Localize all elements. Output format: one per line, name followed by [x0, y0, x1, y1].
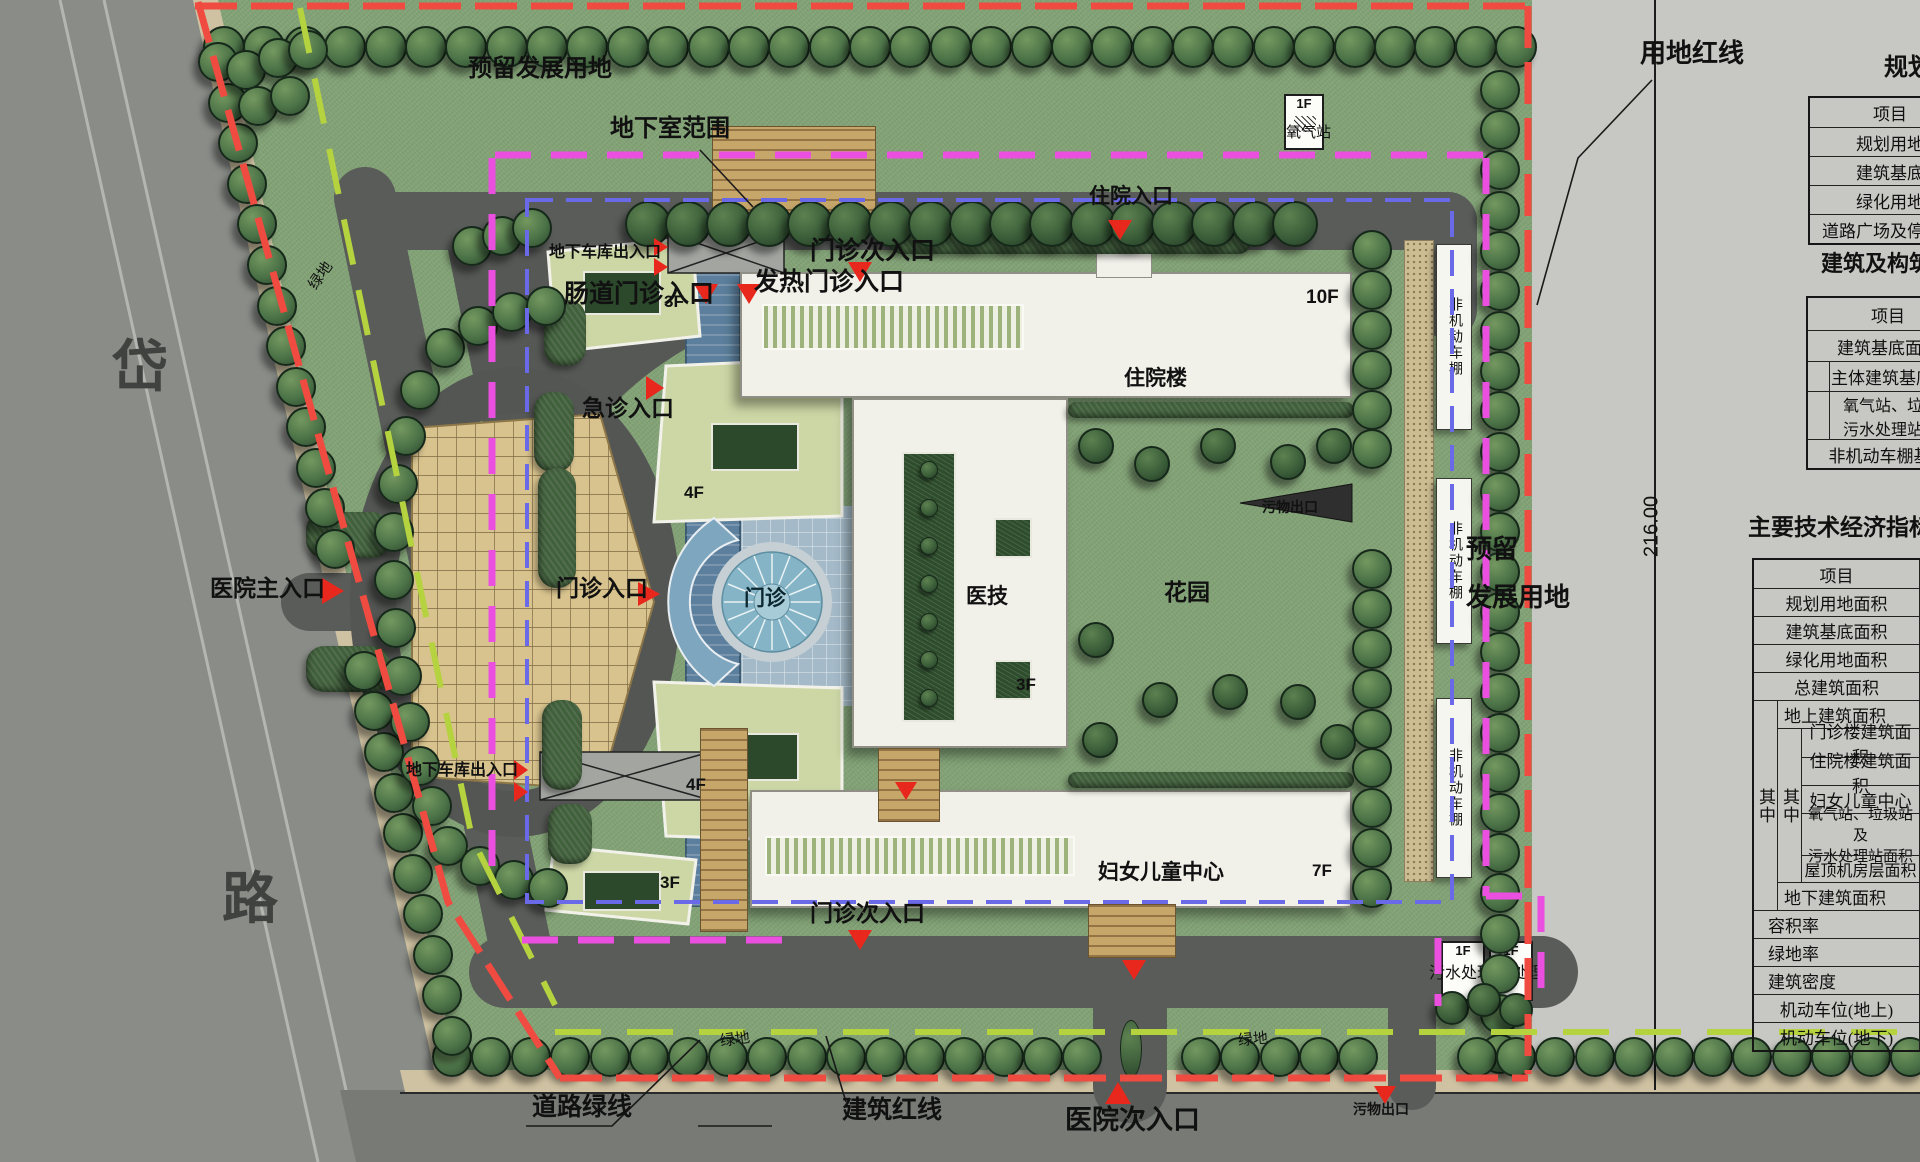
table-header: 项目: [1808, 298, 1920, 330]
qizhong-inner: 其中: [1778, 729, 1802, 882]
intestinal-entrance-label: 肠道门诊入口: [564, 281, 714, 307]
table-header: 项目: [1810, 98, 1920, 127]
table-row-label: 建筑基底面积: [1808, 331, 1920, 361]
outpatient-side-entrance-label: 门诊次入口: [810, 238, 935, 264]
reserved-right-label: 发展用地: [1466, 584, 1570, 611]
block-floors: 4F: [684, 484, 704, 502]
qizhong-group: 其中 地上建筑面积 其中 门诊楼建筑面积 住院楼建筑面积 妇女儿童中心 氧气站、…: [1754, 700, 1920, 910]
waste-exit-label: 污物出口: [1353, 1102, 1409, 1117]
indent-cell: [1808, 392, 1830, 439]
waste-exit-label: 污物出口: [1262, 500, 1318, 515]
table-row-line: 氧气站、垃圾站: [1843, 392, 1920, 416]
indicators-table: 项目 规划用地面积 建筑基底面积 绿化用地面积 总建筑面积 其中 地上建筑面积 …: [1752, 558, 1920, 1052]
table-row-line: 氧气站、垃圾站及: [1802, 803, 1919, 845]
block-floors: 4F: [686, 776, 706, 794]
table-row-label: 规划用地: [1810, 128, 1920, 156]
fever-entrance-label: 发热门诊入口: [754, 269, 904, 295]
inpatient-floors: 10F: [1306, 288, 1339, 308]
qizhong-inner-body: 门诊楼建筑面积 住院楼建筑面积 妇女儿童中心 氧气站、垃圾站及 污水处理站面积 …: [1802, 729, 1920, 882]
table-row-label: 机动车位(地下): [1754, 1023, 1919, 1050]
road-green-line-label: 道路绿线: [532, 1094, 632, 1120]
emergency-entrance-label: 急诊入口: [582, 396, 674, 420]
planning-table-title: 规划: [1884, 56, 1920, 81]
basement-extent-label: 地下室范围: [610, 116, 730, 141]
table-row-label: 总建筑面积: [1754, 673, 1919, 700]
table-row-label: 地下建筑面积: [1778, 883, 1919, 910]
medtech-floors: 3F: [1016, 676, 1036, 694]
dimension-label: 216.00: [1642, 487, 1663, 567]
table-row-label: 屋顶机房层面积: [1802, 856, 1919, 883]
table-row-label: 道路广场及停车场: [1810, 215, 1920, 243]
qizhong-outer: 其中: [1754, 701, 1778, 910]
table-row-label: 规划用地面积: [1754, 589, 1919, 616]
indent-cell: [1808, 362, 1830, 391]
structures-table-title: 建筑及构筑物: [1821, 252, 1920, 275]
inpatient-entrance-label: 住院入口: [1089, 186, 1173, 208]
outpatient-side-entrance-label: 门诊次入口: [810, 901, 925, 925]
block-floors: 3F: [664, 293, 684, 311]
garage-entrance-label: 地下车库出入口: [549, 245, 661, 262]
table-row-label: 建筑密度: [1754, 967, 1919, 994]
entrance-markers: [322, 220, 1396, 1104]
table-row-label: 绿化用地: [1810, 186, 1920, 214]
table-row-label: 住院楼建筑面积: [1802, 758, 1919, 785]
outpatient-hall-label: 门诊: [744, 588, 786, 610]
planning-table: 项目 规划用地 建筑基底 绿化用地 道路广场及停车场: [1808, 96, 1920, 245]
garden-label: 花园: [1164, 580, 1210, 604]
table-row-label: 建筑基底面积: [1754, 617, 1919, 644]
secondary-entrance-label: 医院次入口: [1065, 1106, 1200, 1134]
road-name-char: 岱: [112, 322, 168, 403]
table-row-label: 非机动车棚基底: [1808, 440, 1920, 468]
table-row-label: 建筑基底: [1810, 157, 1920, 185]
women-children-floors: 7F: [1312, 862, 1332, 880]
garage-entrance-label: 地下车库出入口: [406, 763, 518, 780]
outpatient-entrance-label: 门诊入口: [556, 576, 648, 600]
table-row-label: 主体建筑基底面积: [1830, 362, 1920, 391]
building-red-line-label: 建筑红线: [842, 1097, 942, 1123]
medtech-label: 医技: [966, 586, 1008, 608]
green-strip-label: 绿地: [1237, 1031, 1268, 1049]
table-row-label: 氧气站、垃圾站及 污水处理站面积: [1802, 814, 1919, 855]
land-red-line-label: 用地红线: [1640, 40, 1744, 67]
table-row-label: 绿化用地面积: [1754, 645, 1919, 672]
women-children-label: 妇女儿童中心: [1098, 862, 1224, 884]
structures-table: 项目 建筑基底面积 主体建筑基底面积 氧气站、垃圾站 污水处理站基底 非机动车棚…: [1806, 296, 1920, 470]
road-name-char: 路: [222, 854, 278, 935]
site-plan: 非机动车棚 非机动车棚 非机动车棚 1F 氧气站 1F 污水处理 1F 污物处理: [0, 0, 1920, 1162]
table-row-label: 绿地率: [1754, 939, 1919, 966]
reserved-right-label: 预留: [1466, 536, 1518, 563]
inpatient-building-label: 住院楼: [1124, 368, 1187, 390]
table-row-label: 容积率: [1754, 911, 1919, 938]
table-row-label: 氧气站、垃圾站 污水处理站基底: [1830, 392, 1920, 439]
indicators-table-title: 主要技术经济指标: [1748, 516, 1920, 540]
qizhong-body: 地上建筑面积 其中 门诊楼建筑面积 住院楼建筑面积 妇女儿童中心 氧气站、垃圾站…: [1778, 701, 1920, 910]
table-row-label: 机动车位(地上): [1754, 995, 1919, 1022]
table-row-line: 污水处理站基底: [1843, 416, 1920, 440]
main-entrance-label: 医院主入口: [210, 576, 325, 600]
table-header: 项目: [1754, 560, 1919, 588]
block-floors: 3F: [660, 874, 680, 892]
reserved-land-label: 预留发展用地: [468, 56, 612, 81]
